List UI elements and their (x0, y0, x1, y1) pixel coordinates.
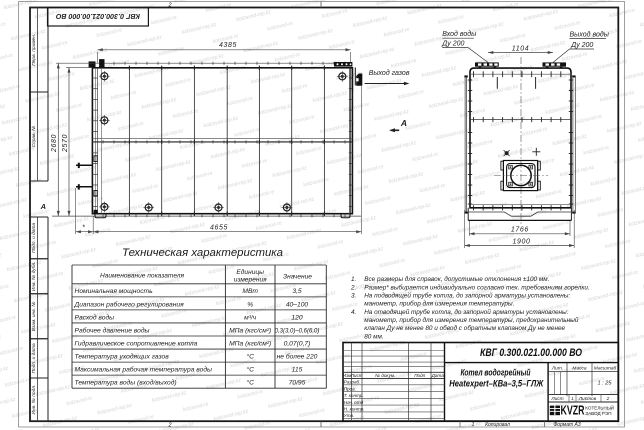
svg-text:120: 120 (291, 314, 302, 321)
svg-text:°С: °С (246, 366, 254, 374)
svg-text:Рабочее давление воды: Рабочее давление воды (75, 326, 150, 334)
svg-text:ЗАВОД РЭП: ЗАВОД РЭП (585, 411, 611, 416)
svg-text:Перв. примен.: Перв. примен. (31, 34, 37, 66)
svg-text:А: А (400, 118, 407, 128)
svg-text:КВГ 0.300.021.00.000 ВО: КВГ 0.300.021.00.000 ВО (480, 347, 582, 359)
svg-text:КВГ 0.300.021.00.000 ВО: КВГ 0.300.021.00.000 ВО (56, 12, 140, 21)
svg-text:Максимальная рабочая температу: Максимальная рабочая температура воды (75, 366, 213, 374)
svg-text:Подп. и дата: Подп. и дата (31, 343, 37, 373)
svg-text:2.: 2. (350, 284, 356, 291)
svg-text:Котел водогрейный: Котел водогрейный (461, 367, 531, 377)
svg-text:Размер* выбирается индивидуаль: Размер* выбирается индивидуально согласн… (364, 283, 590, 291)
svg-text:Утв.: Утв. (344, 413, 354, 418)
svg-text:Расход воды: Расход воды (75, 313, 115, 321)
svg-text:0,3(3,0)–0,6(6,0): 0,3(3,0)–0,6(6,0) (275, 328, 320, 334)
svg-text:Все размеры для справок, допус: Все размеры для справок, допустимые откл… (364, 275, 549, 283)
svg-text:Вход воды: Вход воды (442, 30, 477, 38)
svg-text:На подводящей трубе котла, до: На подводящей трубе котла, до запорной а… (364, 292, 570, 300)
svg-text:1900: 1900 (513, 238, 531, 245)
svg-text:На отводящей трубе котла, до з: На отводящей трубе котла, до запорной ар… (364, 308, 569, 316)
svg-text:Наименование показателя: Наименование показателя (100, 272, 185, 279)
svg-text:1104: 1104 (512, 45, 529, 52)
svg-text:МВт: МВт (242, 288, 258, 295)
svg-text:1766: 1766 (511, 227, 529, 234)
svg-text:Разраб.: Разраб. (344, 380, 361, 385)
svg-text:МПа (кгс/см²): МПа (кгс/см²) (229, 340, 271, 347)
svg-text:Подп. и дата: Подп. и дата (31, 223, 37, 253)
svg-text:м³/ч: м³/ч (244, 314, 257, 321)
svg-text:70/95: 70/95 (289, 380, 306, 387)
svg-text:Т. контр.: Т. контр. (344, 393, 364, 398)
svg-text:*: * (82, 225, 85, 232)
svg-text:1: 1 (571, 396, 574, 402)
svg-text:Диапазон рабочего регулировани: Диапазон рабочего регулирования (74, 300, 185, 308)
svg-text:А: А (40, 202, 46, 211)
svg-text:Лист: Лист (350, 373, 363, 378)
svg-text:Техническая характеристика: Техническая характеристика (122, 247, 283, 259)
svg-text:Температура воды (вход/выход): Температура воды (вход/выход) (75, 379, 177, 387)
svg-text:КОТЕЛЬНЫЙ: КОТЕЛЬНЫЙ (585, 404, 614, 411)
svg-text:4655: 4655 (210, 224, 228, 231)
svg-text:Взам. инв. №: Взам. инв. № (31, 301, 37, 331)
svg-text:2: 2 (167, 3, 171, 9)
svg-text:манометр, прибор для измерения: манометр, прибор для измерения температу… (364, 300, 514, 308)
svg-text:измерения: измерения (234, 277, 267, 284)
svg-text:клапан Ду не менее 80 и обвод: клапан Ду не менее 80 и обвод с обратным… (364, 324, 565, 332)
svg-text:115: 115 (292, 367, 303, 374)
svg-text:0,07(0,7): 0,07(0,7) (284, 340, 311, 347)
svg-text:2680: 2680 (51, 134, 58, 153)
svg-text:40–100: 40–100 (286, 301, 309, 308)
svg-text:%: % (247, 301, 253, 308)
svg-text:Ду 200: Ду 200 (441, 41, 464, 48)
svg-text:Листов: Листов (578, 396, 597, 402)
svg-text:Справ. №: Справ. № (31, 126, 37, 148)
svg-text:Формат А3: Формат А3 (553, 422, 581, 428)
svg-text:Инв. № подл.: Инв. № подл. (31, 385, 37, 415)
svg-text:Масштаб: Масштаб (594, 366, 617, 372)
svg-text:2570: 2570 (62, 134, 69, 153)
svg-text:Лист: Лист (550, 396, 563, 402)
svg-text:°С: °С (246, 352, 254, 360)
svg-text:Н. контр.: Н. контр. (344, 407, 365, 412)
svg-text:1.: 1. (351, 276, 356, 283)
svg-text:KVZR: KVZR (561, 403, 585, 418)
svg-text:°С: °С (246, 379, 254, 387)
svg-text:№ докум.: № докум. (375, 373, 395, 378)
svg-text:Выход газов: Выход газов (369, 69, 410, 77)
svg-text:3,5: 3,5 (292, 288, 302, 295)
svg-text:МПа (кгс/см²): МПа (кгс/см²) (229, 327, 271, 334)
svg-text:Подп: Подп (414, 373, 425, 378)
svg-text:3.: 3. (351, 293, 356, 300)
svg-text:Пров.: Пров. (344, 386, 356, 391)
svg-text:не более 220: не более 220 (277, 352, 318, 360)
svg-text:2: 2 (167, 422, 171, 428)
svg-text:4.: 4. (351, 309, 356, 316)
svg-text:Дата: Дата (431, 373, 445, 378)
svg-text:Номинальная мощность: Номинальная мощность (75, 288, 154, 295)
svg-text:80 мм.: 80 мм. (364, 333, 383, 340)
svg-text:манометр, прибор для измерения: манометр, прибор для измерения температу… (364, 316, 579, 324)
svg-text:Единицы: Единицы (236, 268, 264, 276)
svg-text:Ду 200: Ду 200 (570, 42, 593, 49)
svg-text:Выход воды: Выход воды (570, 30, 610, 38)
svg-text:Температура уходящих газов: Температура уходящих газов (75, 352, 170, 360)
svg-text:4385: 4385 (219, 42, 237, 49)
svg-text:Инв. № дубл.: Инв. № дубл. (31, 262, 37, 292)
svg-text:Гидравлическое сопротивление к: Гидравлическое сопротивление котла (75, 339, 198, 347)
svg-text:Лит.: Лит. (551, 366, 563, 372)
svg-text:1: 1 (472, 422, 475, 428)
svg-text:Heatexpert–КВа–3,5–ГЛЖ: Heatexpert–КВа–3,5–ГЛЖ (449, 378, 544, 388)
svg-text:1 : 25: 1 : 25 (598, 380, 613, 386)
svg-text:2: 2 (606, 396, 610, 402)
svg-text:Масса: Масса (572, 366, 587, 372)
svg-text:Копировал: Копировал (485, 422, 510, 428)
svg-text:Значение: Значение (283, 273, 312, 280)
svg-text:Нач. отд: Нач. отд (344, 400, 364, 405)
